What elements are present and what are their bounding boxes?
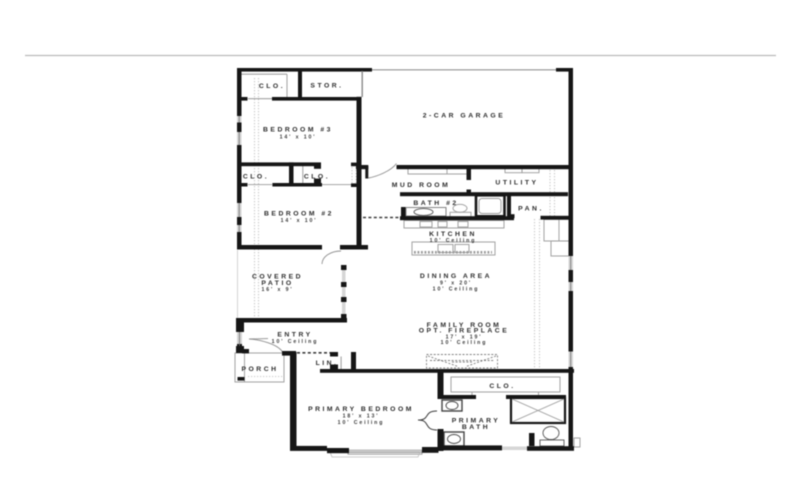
svg-text:BEDROOM #2: BEDROOM #2 — [264, 211, 334, 218]
svg-text:BATH: BATH — [462, 424, 490, 431]
svg-text:CLO.: CLO. — [489, 383, 515, 390]
svg-text:ENTRY: ENTRY — [277, 332, 312, 339]
svg-text:UTILITY: UTILITY — [495, 180, 538, 187]
svg-text:PORCH: PORCH — [241, 366, 278, 373]
svg-text:KITCHEN: KITCHEN — [429, 231, 477, 238]
svg-text:STOR.: STOR. — [310, 83, 343, 90]
svg-text:MUD ROOM: MUD ROOM — [392, 182, 451, 189]
svg-text:PATIO: PATIO — [261, 280, 293, 287]
svg-text:2-CAR GARAGE: 2-CAR GARAGE — [423, 113, 506, 120]
svg-text:14' x 10': 14' x 10' — [281, 218, 318, 224]
svg-text:OPT. FIREPLACE: OPT. FIREPLACE — [419, 328, 510, 335]
svg-text:10' Ceiling: 10' Ceiling — [272, 339, 319, 345]
svg-text:16' x 9': 16' x 9' — [261, 287, 293, 293]
svg-text:10' Ceiling: 10' Ceiling — [338, 420, 385, 426]
svg-text:PAN.: PAN. — [518, 206, 544, 213]
svg-text:PRIMARY BEDROOM: PRIMARY BEDROOM — [308, 406, 414, 413]
svg-text:10' Ceiling: 10' Ceiling — [441, 340, 488, 346]
svg-text:CLO.: CLO. — [243, 174, 269, 181]
svg-text:CLO.: CLO. — [304, 174, 330, 181]
svg-text:DINING AREA: DINING AREA — [420, 273, 492, 280]
svg-text:BATH #2: BATH #2 — [413, 200, 458, 207]
svg-text:18' x 13': 18' x 13' — [343, 414, 380, 420]
svg-text:10' Ceiling: 10' Ceiling — [430, 238, 477, 244]
svg-text:14' x 10': 14' x 10' — [280, 135, 317, 141]
svg-text:10' Ceiling: 10' Ceiling — [433, 287, 480, 293]
svg-text:CLO.: CLO. — [259, 83, 285, 90]
svg-text:LIN.: LIN. — [316, 360, 339, 367]
svg-text:BEDROOM #3: BEDROOM #3 — [263, 127, 333, 134]
